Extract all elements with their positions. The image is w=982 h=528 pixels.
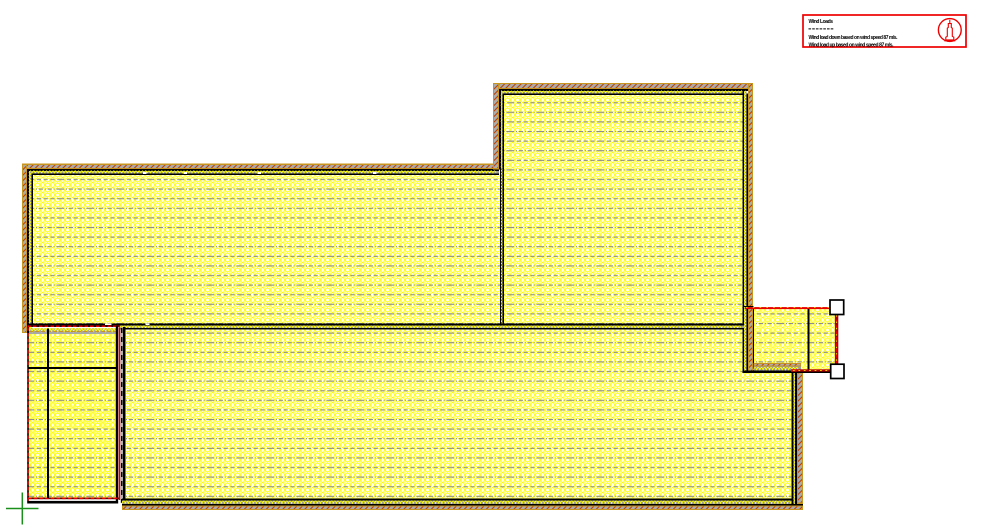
svg-text:Wind Loads: Wind Loads	[809, 19, 834, 25]
svg-text:Wind load up based on wind spe: Wind load up based on wind speed 87 m/s.	[809, 43, 895, 49]
svg-text:Wind load down based on wind s: Wind load down based on wind speed 87 m/…	[809, 35, 899, 41]
